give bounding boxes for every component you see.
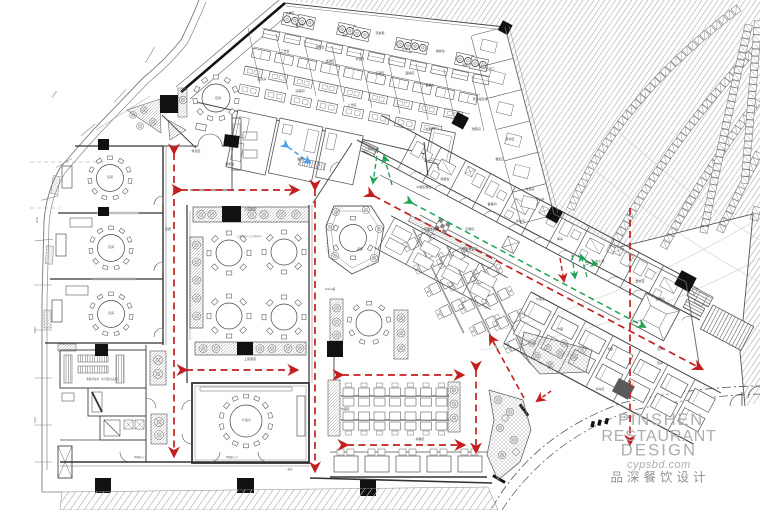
- svg-text:包间: 包间: [215, 95, 221, 100]
- svg-text:服务台: 服务台: [225, 161, 234, 166]
- svg-text:上菜通道与 大厅候area: 上菜通道与 大厅候area: [237, 234, 262, 238]
- svg-text:备餐间: 备餐间: [487, 201, 496, 206]
- svg-text:服务准备区: 服务准备区: [462, 246, 477, 251]
- svg-text:茶水区: 茶水区: [505, 136, 514, 141]
- svg-text:大包间: 大包间: [241, 417, 250, 422]
- svg-text:汤炉: 汤炉: [462, 62, 468, 67]
- svg-text:上菜通道: 上菜通道: [244, 206, 256, 211]
- svg-text:上菜服务区域: 上菜服务区域: [421, 226, 439, 231]
- svg-text:卡座区: 卡座区: [340, 406, 349, 411]
- svg-text:海鲜池: 海鲜池: [435, 48, 444, 53]
- svg-text:cypsbd.com: cypsbd.com: [627, 459, 691, 471]
- svg-text:12600: 12600: [50, 90, 58, 99]
- svg-text:库房: 库房: [557, 236, 563, 241]
- svg-text:打荷区: 打荷区: [375, 70, 384, 75]
- svg-text:7800: 7800: [33, 416, 37, 423]
- svg-text:工作台: 工作台: [280, 48, 289, 53]
- svg-text:收银台: 收银台: [440, 176, 449, 181]
- svg-text:休息区: 休息区: [191, 148, 200, 153]
- svg-text:配餐区: 配餐区: [465, 226, 474, 231]
- svg-text:洗碗间专用（公司独立完成）: 洗碗间专用（公司独立完成）: [86, 377, 120, 381]
- svg-text:洗碗间: 洗碗间: [471, 126, 480, 131]
- svg-text:卡座: 卡座: [607, 346, 613, 351]
- svg-text:洗消区: 洗消区: [325, 58, 334, 63]
- svg-text:粗加工: 粗加工: [495, 156, 504, 161]
- svg-text:包间: 包间: [107, 174, 113, 179]
- svg-text:品深餐饮设计: 品深餐饮设计: [610, 470, 709, 485]
- svg-text:厨房: 厨房: [288, 467, 293, 471]
- svg-text:点心房: 点心房: [535, 196, 544, 201]
- svg-text:炒炉: 炒炉: [402, 46, 408, 51]
- svg-text:包间: 包间: [108, 244, 114, 249]
- svg-text:走廊: 走廊: [165, 226, 171, 231]
- svg-text:垃圾房: 垃圾房: [525, 186, 534, 191]
- svg-text:面点房: 面点房: [257, 76, 266, 81]
- svg-text:包间: 包间: [657, 360, 663, 365]
- svg-text:蒸柜: 蒸柜: [342, 32, 348, 37]
- svg-text:PINSHEN: PINSHEN: [618, 411, 704, 429]
- svg-text:包间: 包间: [657, 346, 663, 351]
- svg-text:甲级防火门: 甲级防火门: [226, 455, 239, 459]
- svg-text:走廊: 走廊: [357, 246, 363, 251]
- svg-text:9000: 9000: [35, 216, 39, 223]
- svg-text:甲级防火门: 甲级防火门: [134, 455, 147, 459]
- svg-text:DESIGN: DESIGN: [621, 442, 697, 460]
- svg-text:卡座区: 卡座区: [535, 296, 544, 301]
- svg-text:炒炉区: 炒炉区: [285, 10, 294, 15]
- svg-text:8400: 8400: [33, 326, 37, 333]
- svg-text:消毒间: 消毒间: [515, 218, 524, 223]
- svg-text:洗消间: 洗消间: [425, 126, 434, 131]
- svg-text:洗消毒区域: 洗消毒区域: [472, 96, 487, 101]
- svg-text:楼梯间: 楼梯间: [655, 296, 664, 301]
- svg-text:中餐配餐区: 中餐配餐区: [416, 184, 431, 189]
- svg-text:4-6人桌: 4-6人桌: [325, 286, 335, 291]
- svg-text:上菜间: 上菜间: [364, 146, 373, 151]
- svg-text:备餐: 备餐: [297, 156, 303, 161]
- svg-text:水台区: 水台区: [355, 56, 364, 61]
- svg-text:出菜口: 出菜口: [485, 66, 494, 71]
- svg-text:卡座: 卡座: [557, 326, 563, 331]
- svg-text:停车区: 停车区: [595, 386, 604, 391]
- svg-text:办公室: 办公室: [595, 258, 604, 263]
- svg-text:面案区: 面案区: [405, 70, 414, 75]
- svg-text:蒸饭柜: 蒸饭柜: [375, 30, 384, 35]
- svg-text:煲仔炉: 煲仔炉: [295, 22, 304, 27]
- svg-text:调料台: 调料台: [315, 44, 324, 49]
- svg-text:候餐区: 候餐区: [415, 436, 424, 441]
- svg-text:凉菜间: 凉菜间: [295, 88, 304, 93]
- svg-text:更衣室: 更衣室: [635, 278, 644, 283]
- svg-text:备餐台: 备餐台: [425, 82, 434, 87]
- svg-text:上菜通道: 上菜通道: [244, 356, 256, 361]
- svg-text:包间: 包间: [108, 310, 114, 315]
- svg-text:上什区: 上什区: [347, 102, 356, 107]
